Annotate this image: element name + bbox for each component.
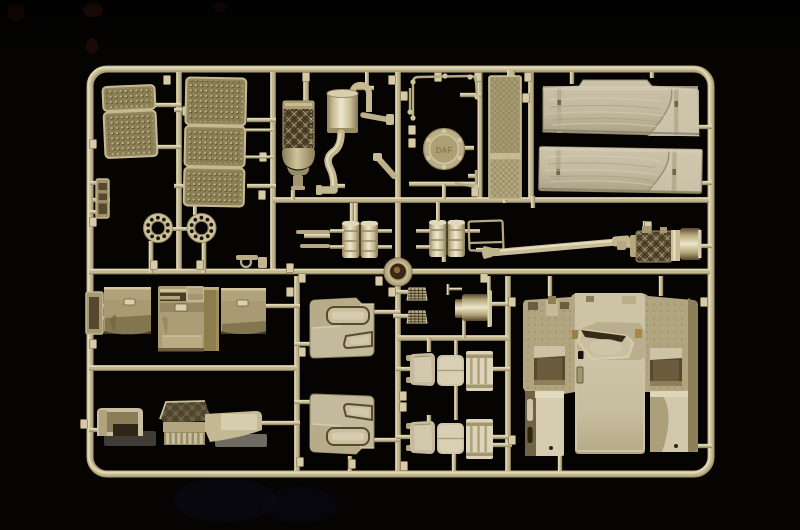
svg-text:DAF: DAF — [436, 146, 453, 155]
